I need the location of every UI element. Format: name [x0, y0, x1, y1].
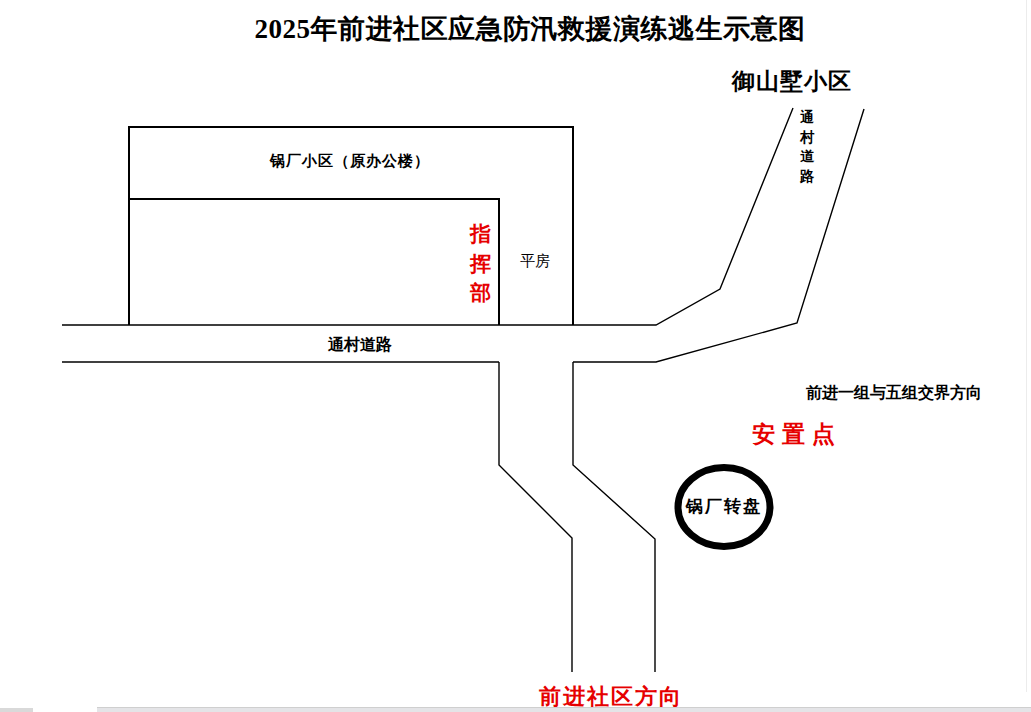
roundabout-label: 锅厂转盘: [686, 497, 762, 517]
village-road-vertical-label: 通村道路: [800, 108, 814, 186]
bottom-bar-right-segment: [97, 707, 1031, 712]
south-road-left-line: [499, 362, 572, 672]
road-top-line: [62, 108, 793, 325]
page-right-edge: [1026, 0, 1027, 692]
building-divider: [129, 199, 499, 325]
village-road-label: 通村道路: [328, 336, 392, 354]
south-road-right-line: [573, 362, 655, 672]
map-drawing: [0, 0, 1031, 712]
boundary-direction-label: 前进一组与五组交界方向: [806, 384, 982, 402]
evacuation-diagram-page: 2025年前进社区应急防汛救援演练逃生示意图 御山墅小区 通村道路 锅厂小区（原…: [0, 0, 1031, 712]
command-post-label: 指挥部: [470, 220, 491, 309]
bottom-bar-left-segment: [0, 708, 33, 712]
resettlement-point-label: 安置点: [752, 422, 842, 448]
bungalow-label: 平房: [520, 253, 550, 270]
yushanshu-area-label: 御山墅小区: [732, 69, 852, 95]
page-title: 2025年前进社区应急防汛救援演练逃生示意图: [255, 14, 806, 45]
guochang-block-label: 锅厂小区（原办公楼）: [270, 153, 430, 170]
qianjin-direction-label: 前进社区方向: [539, 684, 683, 709]
road-bottom-line-right: [573, 109, 864, 362]
